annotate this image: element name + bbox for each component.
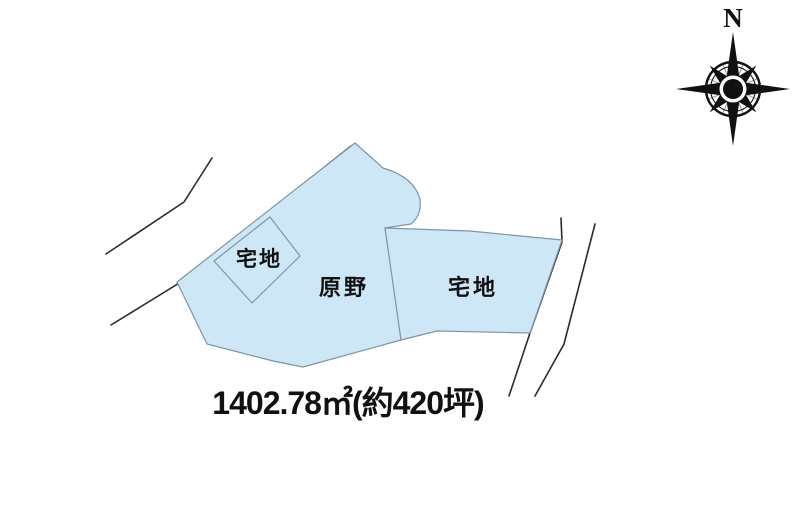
north-label: N (723, 3, 743, 33)
total-area-text: 1402.78㎡(約420坪) (212, 385, 484, 421)
label-wild-field: 原野 (319, 275, 369, 300)
site-plan-svg: 宅地 原野 宅地 1402.78㎡(約420坪) (0, 0, 800, 508)
compass-hub (723, 79, 743, 99)
label-residential-right: 宅地 (448, 275, 498, 300)
land-plot-diagram: 宅地 原野 宅地 1402.78㎡(約420坪) (0, 0, 800, 508)
label-residential-small: 宅地 (236, 247, 282, 271)
road-line-upper-left (106, 158, 212, 254)
compass-rose (676, 32, 790, 146)
